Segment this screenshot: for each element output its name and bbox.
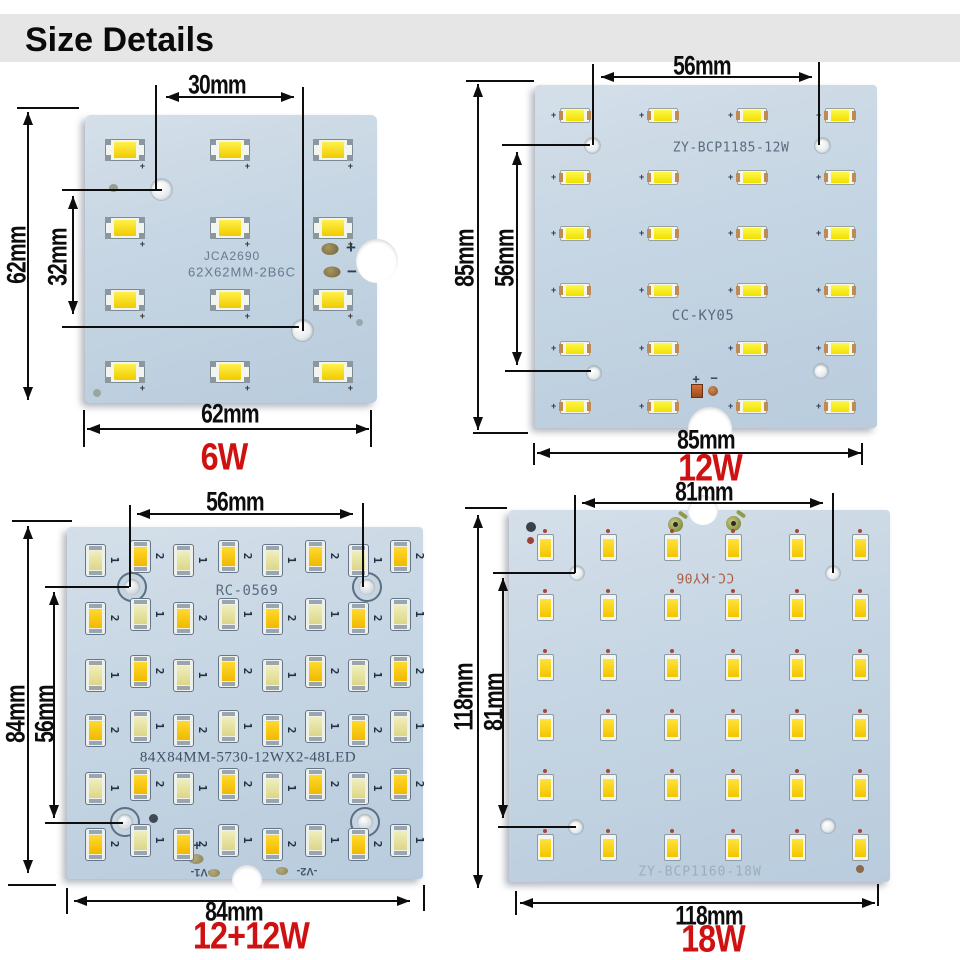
dim-side: 62mm [2,226,33,284]
led-electrode [559,229,563,238]
led-chip [852,654,869,681]
led-die [855,659,866,677]
led-die [743,285,761,296]
minus-terminal-mark: − [710,371,718,386]
page-title: Size Details [25,21,214,60]
led-electrode [177,686,190,690]
led-die [831,110,849,121]
led-chip [664,714,681,741]
led-chip: + [105,139,145,161]
led-electrode [736,402,740,411]
led-die [322,364,344,380]
polarity-dot [543,709,547,713]
led-electrode [559,344,563,353]
led-electrode [675,173,679,182]
led-electrode [266,774,279,778]
led-chip: 1 [348,772,369,805]
board-code-2: 62X62MM-2B6C [188,265,296,280]
channel-digit: 1 [413,837,426,844]
fiducial-dot [527,537,534,544]
led-electrode [266,741,279,745]
led-electrode [764,402,768,411]
board-code-2: ZY-BCP1160-18W [638,865,762,880]
led-clip [244,139,250,145]
led-chip [852,534,869,561]
led-electrode [89,686,102,690]
led-chip [789,654,806,681]
polarity-dot [606,709,610,713]
led-clip [347,139,353,145]
channel-digit: 2 [413,781,426,788]
led-die [222,831,235,850]
polarity-dot [795,529,799,533]
led-clip [244,361,250,367]
led-chip [725,714,742,741]
led-chip: 1 [130,824,151,857]
led-chip [664,654,681,681]
led-die [728,659,739,677]
polarity-mark: + [816,110,821,120]
led-electrode [587,286,591,295]
channel-digit: 1 [413,611,426,618]
led-die [566,228,584,239]
led-die [667,659,678,677]
channel-digit: 1 [153,837,166,844]
led-electrode [89,830,102,834]
channel-digit: 2 [241,553,254,560]
led-chip [725,774,742,801]
led-electrode [134,851,147,855]
leader-line [498,826,576,828]
led-clip [347,233,353,239]
led-die [743,401,761,412]
led-chip [664,534,681,561]
v1-label: -V1- [191,866,212,878]
leader-line [155,85,157,190]
led-chip: + [648,283,678,298]
led-die [352,721,365,740]
board-code-2: CC-KY05 [672,308,735,324]
channel-digit: 2 [413,668,426,675]
led-electrode [266,661,279,665]
dim-top: 81mm [675,477,733,508]
polarity-dot [858,769,862,773]
led-die [855,539,866,557]
polarity-mark: + [245,161,250,171]
led-electrode [394,542,407,546]
dim-tick [17,107,79,109]
led-die [266,609,279,628]
led-die [654,343,672,354]
led-chip [789,594,806,621]
dim-arrow-horizontal [87,428,369,430]
led-chip: 1 [130,710,151,743]
led-chip [852,834,869,861]
led-electrode [675,229,679,238]
leader-line [592,64,594,145]
led-electrode [134,657,147,661]
polarity-dot [543,529,547,533]
polarity-mark: + [140,239,145,249]
led-die [728,599,739,617]
polarity-dot [606,649,610,653]
led-die [114,220,136,236]
channel-digit: 2 [328,781,341,788]
led-die [134,831,147,850]
led-die [177,835,190,854]
led-electrode [222,567,235,571]
led-die [352,779,365,798]
led-chip: 1 [262,772,283,805]
led-die [667,539,678,557]
led-electrode [222,657,235,661]
led-die [792,719,803,737]
led-die [566,343,584,354]
led-chip: 1 [218,824,239,857]
led-electrode [266,571,279,575]
channel-digit: 1 [285,672,298,679]
polarity-dot [670,649,674,653]
led-chip: 1 [348,659,369,692]
led-electrode [852,344,856,353]
led-electrode [824,173,828,182]
led-clip [210,139,216,145]
board-code-2: 84X84MM-5730-12WX2-48LED [140,750,356,767]
leader-line [129,505,131,587]
channel-digit: 2 [196,615,209,622]
led-die [266,835,279,854]
led-die [219,220,241,236]
led-electrode [177,774,190,778]
led-electrode [394,600,407,604]
led-chip: 1 [390,824,411,857]
led-electrode [352,855,365,859]
led-chip [600,594,617,621]
led-electrode [736,111,740,120]
mounting-hole-ring [350,807,380,837]
led-electrode [89,661,102,665]
led-die [831,401,849,412]
polarity-dot [731,589,735,593]
led-die [309,662,322,681]
led-chip: + [825,108,855,123]
polarity-mark: + [639,285,644,295]
led-electrode [309,712,322,716]
led-die [603,839,614,857]
led-chip: 2 [85,602,106,635]
led-clip [313,155,319,161]
channel-digit: 2 [371,727,384,734]
dim-bottom: 62mm [201,399,259,430]
dim-side: 85mm [450,229,481,287]
leader-line [505,370,591,372]
led-electrode [736,286,740,295]
led-electrode [177,830,190,834]
led-die [603,539,614,557]
mounting-hole-ring [110,807,140,837]
led-chip: 2 [173,602,194,635]
led-die [603,779,614,797]
channel-digit: 2 [328,668,341,675]
led-electrode [222,625,235,629]
led-electrode [134,795,147,799]
led-die [855,839,866,857]
led-chip: + [313,289,353,311]
led-chip: + [560,399,590,414]
led-electrode [266,830,279,834]
dim-arrow-horizontal [520,902,875,904]
led-clip [210,155,216,161]
led-chip: 1 [262,659,283,692]
led-die [540,599,551,617]
led-chip: 2 [305,655,326,688]
dim-tick [861,443,863,465]
led-clip [347,361,353,367]
led-chip: + [648,170,678,185]
polarity-dot [858,529,862,533]
led-chip [537,714,554,741]
led-electrode [134,737,147,741]
polarity-mark: + [728,343,733,353]
led-die [855,779,866,797]
pcb-board-12w: ZY-BCP1185-12W CC-KY05 + − +++++++++++++… [535,85,877,428]
dim-arrow-horizontal [582,502,823,504]
led-electrode [222,795,235,799]
led-die [309,775,322,794]
led-chip: 1 [218,710,239,743]
led-clip [139,139,145,145]
pcb-board-6w: JCA2690 62X62MM-2B6C + − ++++++++++++ [85,115,377,403]
led-electrode [309,737,322,741]
fiducial-dot [526,522,536,532]
led-die [352,835,365,854]
led-die [540,539,551,557]
polarity-mark: + [551,285,556,295]
led-clip [347,377,353,383]
polarity-dot [670,769,674,773]
led-electrode [134,542,147,546]
polarity-dot [795,649,799,653]
led-clip [210,233,216,239]
edge-notch [688,495,718,525]
led-electrode [89,799,102,803]
led-chip: + [825,341,855,356]
led-die [177,551,190,570]
led-chip: 1 [305,824,326,857]
leader-line [574,495,576,573]
led-electrode [675,344,679,353]
dim-arrow-vertical [27,526,29,873]
led-clip [244,155,250,161]
led-die [394,662,407,681]
led-die [394,775,407,794]
led-die [743,228,761,239]
led-electrode [824,229,828,238]
mounting-hole-ring [117,572,147,602]
channel-digit: 2 [285,727,298,734]
led-die [266,721,279,740]
polarity-dot [731,769,735,773]
led-electrode [764,111,768,120]
led-die [792,659,803,677]
led-die [134,547,147,566]
led-electrode [394,625,407,629]
led-chip: 2 [130,655,151,688]
polarity-dot [670,589,674,593]
led-chip: 1 [218,598,239,631]
led-die [728,779,739,797]
channel-digit: 1 [108,672,121,679]
led-die [352,666,365,685]
led-chip [789,534,806,561]
led-electrode [134,567,147,571]
polarity-mark: + [728,172,733,182]
led-die [566,285,584,296]
led-clip [313,217,319,223]
led-electrode [222,682,235,686]
led-chip: + [737,399,767,414]
led-chip: 1 [173,772,194,805]
mounting-hole [151,179,172,200]
polarity-mark: + [245,383,250,393]
led-chip [789,834,806,861]
polarity-dot [795,589,799,593]
polarity-mark: + [140,383,145,393]
mounting-hole [821,819,835,833]
channel-digit: 1 [328,837,341,844]
led-electrode [587,402,591,411]
led-chip: 2 [305,540,326,573]
led-chip: + [560,170,590,185]
led-die [134,605,147,624]
polarity-dot [731,649,735,653]
dim-arrow-horizontal [166,96,294,98]
board-code: RC-0569 [216,583,279,599]
led-electrode [352,604,365,608]
pcb-board-18w: CC-KY06 ZY-BCP1160-18W [509,510,890,882]
dim-bottom: 85mm [677,425,735,456]
led-clip [139,217,145,223]
led-electrode [309,567,322,571]
led-chip: + [210,289,250,311]
led-electrode [394,770,407,774]
led-electrode [266,716,279,720]
led-chip: + [560,226,590,241]
mounting-hole-ring [352,572,382,602]
wire-eyelet [668,517,683,532]
channel-digit: 2 [153,553,166,560]
channel-digit: 1 [371,785,384,792]
channel-digit: 1 [241,611,254,618]
led-electrode [222,542,235,546]
led-chip: + [313,139,353,161]
channel-digit: 1 [153,611,166,618]
led-die [266,551,279,570]
polarity-dot [606,529,610,533]
led-die [219,142,241,158]
panel-12w: ZY-BCP1185-12W CC-KY05 + − +++++++++++++… [0,0,960,960]
led-clip [139,305,145,311]
led-electrode [824,344,828,353]
led-die [114,292,136,308]
led-electrode [177,629,190,633]
led-die [792,839,803,857]
polarity-dot [543,769,547,773]
led-chip: 1 [348,544,369,577]
led-electrode [852,173,856,182]
polarity-mark: + [140,161,145,171]
board-code: CC-KY06 [676,570,734,585]
channel-digit: 1 [285,785,298,792]
polarity-dot [670,829,674,833]
led-clip [244,217,250,223]
dim-tick [877,884,879,906]
led-electrode [309,625,322,629]
led-chip [789,774,806,801]
polarity-dot [858,829,862,833]
led-chip: 2 [348,828,369,861]
dim-tick [465,507,507,509]
polarity-mark: + [551,343,556,353]
led-chip: 2 [348,602,369,635]
led-chip [600,774,617,801]
led-chip: 1 [390,598,411,631]
led-electrode [352,830,365,834]
led-electrode [309,600,322,604]
led-electrode [222,737,235,741]
led-chip: + [105,289,145,311]
fiducial-dot [856,865,864,873]
led-die [89,666,102,685]
led-clip [139,289,145,295]
polarity-dot [543,829,547,833]
polarity-mark: + [551,401,556,411]
led-chip [725,534,742,561]
edge-notch [688,407,732,451]
dim-arrow-vertical [72,196,74,314]
channel-digit: 1 [328,611,341,618]
led-chip: + [560,108,590,123]
led-die [114,364,136,380]
led-die [566,401,584,412]
smd-component [691,384,703,398]
polarity-mark: + [140,311,145,321]
led-electrode [352,629,365,633]
channel-digit: 2 [196,727,209,734]
dim-tick [515,891,517,915]
led-die [855,599,866,617]
led-electrode [266,855,279,859]
channel-digit: 1 [196,557,209,564]
channel-digit: 2 [153,781,166,788]
led-die [219,364,241,380]
led-chip: + [313,361,353,383]
led-chip: + [648,226,678,241]
polarity-mark: + [245,311,250,321]
led-chip: + [648,399,678,414]
led-electrode [177,546,190,550]
header-band: Size Details [0,14,960,62]
channel-digit: 1 [328,723,341,730]
led-chip: 1 [85,772,106,805]
channel-digit: 2 [241,781,254,788]
dim-side: 84mm [1,685,32,743]
led-die [177,721,190,740]
led-chip: + [560,283,590,298]
led-clip [105,155,111,161]
channel-digit: 1 [241,837,254,844]
led-die [89,721,102,740]
